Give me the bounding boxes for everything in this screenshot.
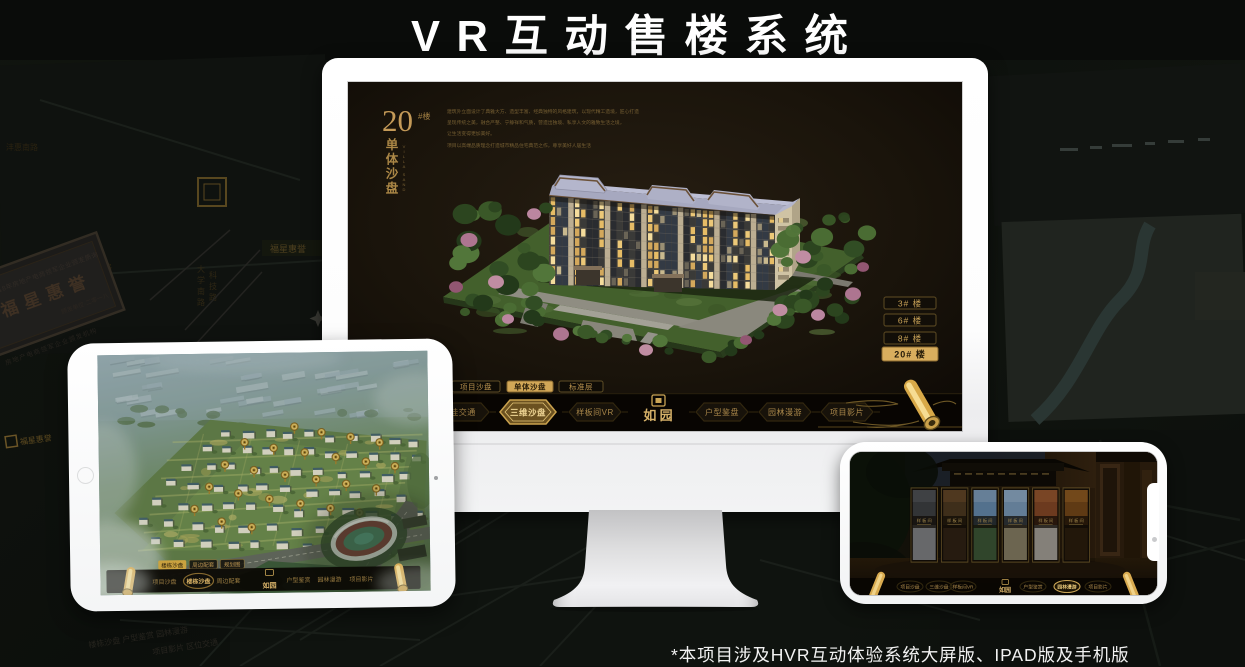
svg-text:单体沙盘: 单体沙盘 (514, 382, 546, 392)
svg-text:样板间VR: 样板间VR (576, 407, 614, 417)
svg-text:项目影片: 项目影片 (830, 407, 864, 417)
svg-text:如园: 如园 (999, 586, 1011, 594)
svg-text:福星惠誉: 福星惠誉 (270, 243, 306, 254)
svg-text:户型鉴盘: 户型鉴盘 (705, 407, 739, 417)
svg-text:体: 体 (386, 152, 399, 167)
svg-text:A: A (403, 164, 406, 169)
svg-text:大: 大 (197, 264, 205, 274)
svg-text:标准层: 标准层 (569, 382, 593, 392)
svg-text:三维沙盘: 三维沙盘 (510, 408, 546, 418)
svg-text:让生活变得更加美好。: 让生活变得更加美好。 (447, 130, 495, 137)
svg-text:呈现传统之美，融合严整、宁静祥和气质，营造出独境、私享人文的: 呈现传统之美，融合严整、宁静祥和气质，营造出独境、私享人文的雅致生活之境， (447, 119, 625, 126)
svg-text:技: 技 (209, 281, 217, 291)
svg-text:如 园: 如 园 (643, 408, 672, 423)
svg-text:项目以高端品质理念打造城市精品住宅典范之作，尊享美好人居生活: 项目以高端品质理念打造城市精品住宅典范之作，尊享美好人居生活 (447, 142, 591, 149)
svg-text:6# 楼: 6# 楼 (898, 316, 922, 326)
svg-text:项目沙盘: 项目沙盘 (900, 584, 919, 591)
svg-text:项目沙盘: 项目沙盘 (460, 382, 492, 392)
svg-text:建筑外立面设计了典雅大方、造型丰富、经典独特的风格建筑，以现: 建筑外立面设计了典雅大方、造型丰富、经典独特的风格建筑，以现代精工造境，匠心打造 (447, 108, 639, 115)
svg-text:盘: 盘 (386, 181, 399, 196)
svg-text:三维沙盘: 三维沙盘 (929, 584, 948, 591)
svg-text:如园: 如园 (263, 581, 277, 590)
svg-text:20: 20 (382, 103, 413, 138)
svg-text:福星惠誉: 福星惠誉 (19, 432, 52, 446)
svg-text:园林漫游: 园林漫游 (1057, 584, 1076, 591)
svg-text:南: 南 (197, 286, 205, 296)
svg-text:佳交通: 佳交通 (450, 407, 476, 417)
svg-text:户型鉴赏: 户型鉴赏 (1023, 584, 1042, 591)
svg-text:3# 楼: 3# 楼 (898, 299, 922, 309)
svg-text:沙: 沙 (386, 167, 399, 181)
svg-text:园林漫游: 园林漫游 (768, 407, 802, 417)
svg-text:#楼: #楼 (418, 111, 430, 121)
svg-text:单: 单 (386, 137, 399, 152)
svg-text:路: 路 (197, 297, 205, 307)
svg-text:D: D (403, 187, 406, 192)
svg-text:20# 楼: 20# 楼 (894, 349, 926, 360)
svg-text:科: 科 (209, 270, 217, 280)
svg-text:8# 楼: 8# 楼 (898, 334, 922, 344)
svg-text:项目影片: 项目影片 (1088, 584, 1107, 591)
svg-text:沣惠南路: 沣惠南路 (6, 142, 38, 152)
svg-text:样板间VR: 样板间VR (952, 584, 974, 591)
svg-text:规划图: 规划图 (224, 560, 241, 568)
svg-text:项目影片 区位交通: 项目影片 区位交通 (152, 637, 219, 657)
svg-text:学: 学 (197, 275, 205, 285)
